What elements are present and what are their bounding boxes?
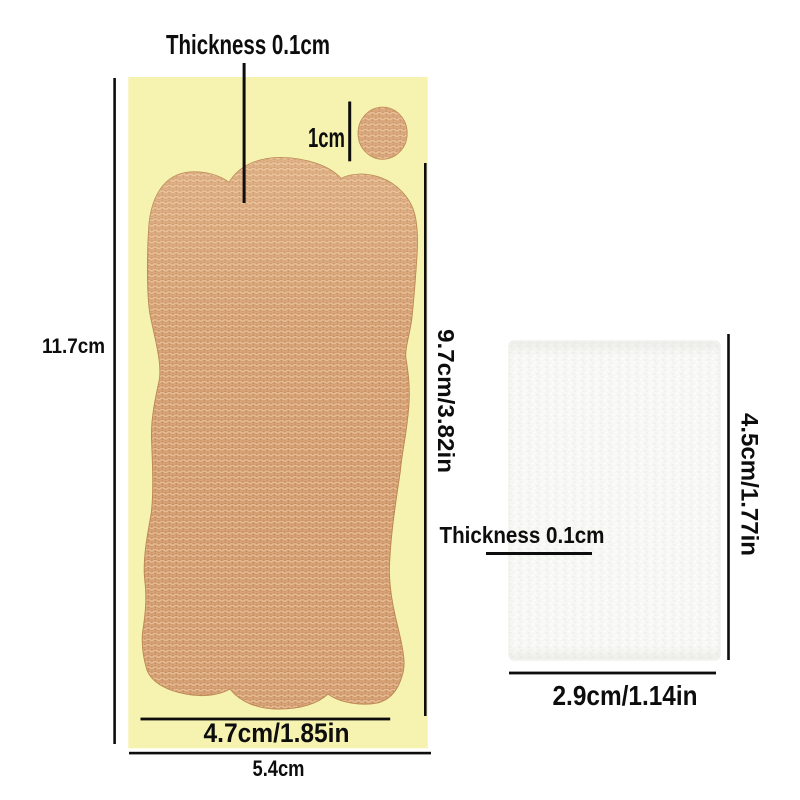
svg-text:4.7cm/1.85in: 4.7cm/1.85in bbox=[204, 718, 350, 748]
svg-text:2.9cm/1.14in: 2.9cm/1.14in bbox=[553, 680, 698, 711]
svg-text:5.4cm: 5.4cm bbox=[253, 756, 305, 781]
svg-text:4.5cm/1.77in: 4.5cm/1.77in bbox=[736, 413, 763, 556]
svg-text:11.7cm: 11.7cm bbox=[42, 334, 105, 358]
svg-text:9.7cm/3.82in: 9.7cm/3.82in bbox=[433, 329, 459, 473]
svg-text:1cm: 1cm bbox=[308, 122, 345, 153]
svg-text:Thickness 0.1cm: Thickness 0.1cm bbox=[440, 522, 605, 548]
svg-text:Thickness 0.1cm: Thickness 0.1cm bbox=[166, 29, 330, 60]
